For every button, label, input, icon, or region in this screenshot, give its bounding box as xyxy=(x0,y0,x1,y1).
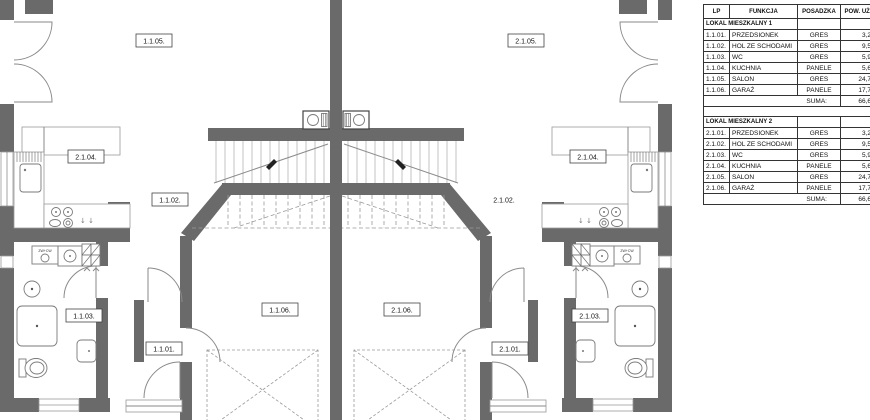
cell: GRES xyxy=(798,52,841,63)
sum-row: SUMA:66,60 m² xyxy=(704,194,870,205)
table-row: 2.1.06.GARAŻPANELE17,70 m² xyxy=(704,183,870,194)
room-label-entry-2: 2.1.01. xyxy=(492,342,528,355)
cell: 1.1.06. xyxy=(704,85,730,96)
section-title: LOKAL MIESZKALNY 2 xyxy=(704,117,798,128)
garage-door-zone xyxy=(207,350,318,420)
svg-text:2.1.01.: 2.1.01. xyxy=(499,347,520,354)
room-schedule: LPFUNKCJAPOSADZKAPOW. UŻYTK.LOKAL MIESZK… xyxy=(703,4,869,205)
duct-shaft xyxy=(82,244,100,271)
section-title-row: LOKAL MIESZKALNY 1 xyxy=(704,19,870,30)
cell: GARAŻ xyxy=(730,85,798,96)
table-row: 2.1.03.WCGRES5,90 m² xyxy=(704,150,870,161)
svg-text:2.1.03.: 2.1.03. xyxy=(579,314,600,321)
chimney xyxy=(303,111,329,129)
sum-value: 66,60 m² xyxy=(841,96,870,107)
svg-text:1.1.03.: 1.1.03. xyxy=(73,314,94,321)
unit-plan-right xyxy=(342,0,672,420)
cell: PANELE xyxy=(798,161,841,172)
empty-cell xyxy=(841,117,870,128)
room-label-wc-1: 1.1.03. xyxy=(66,309,102,322)
cell: 5,60 m² xyxy=(841,161,870,172)
room-label-hall-1: 1.1.02. xyxy=(152,193,188,206)
table-row: 2.1.01.PRZEDSIONEKGRES3,20 m² xyxy=(704,128,870,139)
cell: 2.1.03. xyxy=(704,150,730,161)
section-title-row: LOKAL MIESZKALNY 2 xyxy=(704,117,870,128)
cell: GRES xyxy=(798,150,841,161)
cell: SALON xyxy=(730,74,798,85)
spacer-cell xyxy=(704,107,870,117)
cell: WC xyxy=(730,150,798,161)
room-label-garage-1: 1.1.06. xyxy=(262,303,298,316)
floor-plan: 1.1.05. 2.1.05. 2.1.04. 2.1.04. 1.1.02. … xyxy=(0,0,700,420)
table-row: 1.1.02.HOL ZE SCHODAMIGRES9,50 m² xyxy=(704,41,870,52)
cell: GRES xyxy=(798,74,841,85)
room-label-hall-2: 2.1.02. xyxy=(493,198,514,205)
cell: 2.1.05. xyxy=(704,172,730,183)
floor-plan-page: 1.1.05. 2.1.05. 2.1.04. 2.1.04. 1.1.02. … xyxy=(0,0,870,420)
cell: PRZEDSIONEK xyxy=(730,128,798,139)
kitchen-arrows-2: ↓ ↓ xyxy=(578,217,592,225)
cell: PANELE xyxy=(798,63,841,74)
cell: 24,70 m² xyxy=(841,74,870,85)
cell: HOL ZE SCHODAMI xyxy=(730,41,798,52)
empty-cell xyxy=(798,117,841,128)
empty-cell xyxy=(798,19,841,30)
column-header: POW. UŻYTK. xyxy=(841,5,870,19)
room-label-garage-2: 2.1.06. xyxy=(384,303,420,316)
cell: KUCHNIA xyxy=(730,63,798,74)
cell: 5,90 m² xyxy=(841,150,870,161)
empty-cell xyxy=(841,19,870,30)
table-row: 1.1.05.SALONGRES24,70 m² xyxy=(704,74,870,85)
svg-text:2.1.06.: 2.1.06. xyxy=(391,308,412,315)
cell: 2.1.06. xyxy=(704,183,730,194)
svg-text:2.1.04.: 2.1.04. xyxy=(577,155,598,162)
kitchen-sink xyxy=(20,164,41,192)
cell: GRES xyxy=(798,128,841,139)
schedule-table: LPFUNKCJAPOSADZKAPOW. UŻYTK.LOKAL MIESZK… xyxy=(703,4,870,205)
kitchen-arrows-1: ↓ ↓ xyxy=(80,217,94,225)
cell: 1.1.01. xyxy=(704,30,730,41)
cell: PRZEDSIONEK xyxy=(730,30,798,41)
svg-text:1.1.06.: 1.1.06. xyxy=(269,308,290,315)
cell: 17,70 m² xyxy=(841,183,870,194)
cell: KUCHNIA xyxy=(730,161,798,172)
cell: GRES xyxy=(798,172,841,183)
sum-value: 66,60 m² xyxy=(841,194,870,205)
room-label-kitchen-1: 2.1.04. xyxy=(68,150,104,163)
sum-row: SUMA:66,60 m² xyxy=(704,96,870,107)
svg-text:1.1.05.: 1.1.05. xyxy=(143,39,164,46)
cell: 1.1.03. xyxy=(704,52,730,63)
table-row: 1.1.06.GARAŻPANELE17,70 m² xyxy=(704,85,870,96)
cell: 1.1.04. xyxy=(704,63,730,74)
table-row: 1.1.04.KUCHNIAPANELE5,60 m² xyxy=(704,63,870,74)
cell: GRES xyxy=(798,30,841,41)
cell: 9,50 m² xyxy=(841,41,870,52)
svg-text:2.1.04.: 2.1.04. xyxy=(75,155,96,162)
cell: 2.1.01. xyxy=(704,128,730,139)
table-header-row: LPFUNKCJAPOSADZKAPOW. UŻYTK. xyxy=(704,5,870,19)
cell: 24,70 m² xyxy=(841,172,870,183)
cell: 2.1.04. xyxy=(704,161,730,172)
french-door xyxy=(14,22,52,102)
cell: WC xyxy=(730,52,798,63)
cell: HOL ZE SCHODAMI xyxy=(730,139,798,150)
cell: GRES xyxy=(798,41,841,52)
table-row: 2.1.05.SALONGRES24,70 m² xyxy=(704,172,870,183)
cell: 17,70 m² xyxy=(841,85,870,96)
washer-connection-label-2: ZW+CW xyxy=(620,249,634,253)
svg-text:1.1.01.: 1.1.01. xyxy=(153,347,174,354)
sum-label: SUMA: xyxy=(704,194,841,205)
washbasin xyxy=(77,340,96,362)
room-label-salon-2: 2.1.05. xyxy=(508,34,544,47)
cell: 1.1.02. xyxy=(704,41,730,52)
cell: GARAŻ xyxy=(730,183,798,194)
room-label-wc-2: 2.1.03. xyxy=(572,309,608,322)
svg-text:2.1.05.: 2.1.05. xyxy=(515,39,536,46)
party-wall xyxy=(330,0,342,420)
spacer-row xyxy=(704,107,870,117)
table-row: 2.1.04.KUCHNIAPANELE5,60 m² xyxy=(704,161,870,172)
cell: 5,90 m² xyxy=(841,52,870,63)
cell: SALON xyxy=(730,172,798,183)
cell: PANELE xyxy=(798,183,841,194)
cell: 3,20 m² xyxy=(841,128,870,139)
room-label-kitchen-2: 2.1.04. xyxy=(570,150,606,163)
cell: 5,60 m² xyxy=(841,63,870,74)
room-label-salon-1: 1.1.05. xyxy=(136,34,172,47)
svg-text:1.1.02.: 1.1.02. xyxy=(159,198,180,205)
table-row: 1.1.03.WCGRES5,90 m² xyxy=(704,52,870,63)
cell: 9,50 m² xyxy=(841,139,870,150)
washer-connection-label-1: ZW+CW xyxy=(38,249,52,253)
room-label-entry-1: 1.1.01. xyxy=(146,342,182,355)
column-header: LP xyxy=(704,5,730,19)
cell: 3,20 m² xyxy=(841,30,870,41)
kitchen-fixtures xyxy=(14,127,130,228)
cell: 1.1.05. xyxy=(704,74,730,85)
table-row: 2.1.02.HOL ZE SCHODAMIGRES9,50 m² xyxy=(704,139,870,150)
cell: GRES xyxy=(798,139,841,150)
column-header: FUNKCJA xyxy=(730,5,798,19)
cell: 2.1.02. xyxy=(704,139,730,150)
section-title: LOKAL MIESZKALNY 1 xyxy=(704,19,798,30)
cell: PANELE xyxy=(798,85,841,96)
unit-plan-left xyxy=(0,0,330,420)
column-header: POSADZKA xyxy=(798,5,841,19)
sum-label: SUMA: xyxy=(704,96,841,107)
table-row: 1.1.01.PRZEDSIONEKGRES3,20 m² xyxy=(704,30,870,41)
